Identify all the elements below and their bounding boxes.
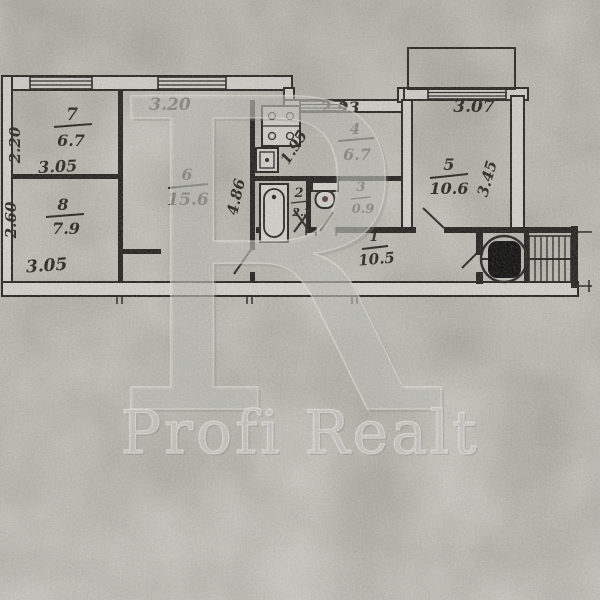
scan-shading — [0, 0, 600, 600]
scanned-floorplan-page: 7 6.7 3.05 2.20 8 7.9 3.05 2.60 3.20 6 1… — [0, 0, 600, 600]
floorplan-scan: 7 6.7 3.05 2.20 8 7.9 3.05 2.60 3.20 6 1… — [0, 0, 600, 600]
